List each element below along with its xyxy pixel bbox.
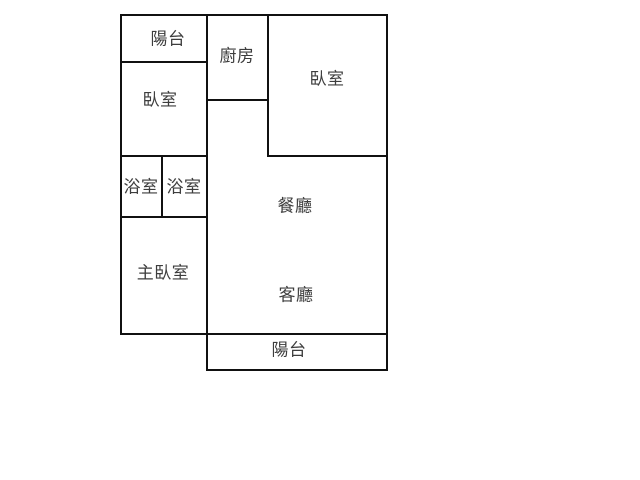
floor-plan-canvas: 陽台 廚房 臥室 臥室 浴室 浴室 餐廳 主臥室 客廳 陽台 [0, 0, 640, 480]
wall-master-bedroom-bottom [120, 333, 388, 335]
room-label-balcony-top: 陽台 [151, 32, 186, 49]
wall-kitchen-bottom [206, 99, 269, 101]
wall-balcony-top-bottom [120, 61, 208, 63]
room-label-bedroom-right: 臥室 [310, 72, 345, 89]
wall-outer-top [120, 14, 388, 16]
wall-bathroom-divider [161, 155, 163, 218]
room-label-bedroom-left: 臥室 [143, 93, 178, 110]
wall-bedroom-left-bottom [120, 155, 208, 157]
room-label-kitchen: 廚房 [220, 49, 255, 66]
wall-balcony-bottom-outer [206, 369, 388, 371]
room-label-bathroom-left: 浴室 [124, 180, 159, 197]
wall-outer-right [386, 14, 388, 371]
wall-center-vertical [206, 14, 208, 371]
wall-bedroom-right-bottom [267, 155, 388, 157]
room-label-dining-room: 餐廳 [278, 199, 313, 216]
wall-kitchen-right [267, 14, 269, 157]
room-label-master-bedroom: 主臥室 [137, 266, 190, 283]
wall-bathroom-bottom [120, 216, 208, 218]
room-label-bathroom-right: 浴室 [167, 180, 202, 197]
room-label-living-room: 客廳 [279, 288, 314, 305]
room-label-balcony-bottom: 陽台 [272, 343, 307, 360]
